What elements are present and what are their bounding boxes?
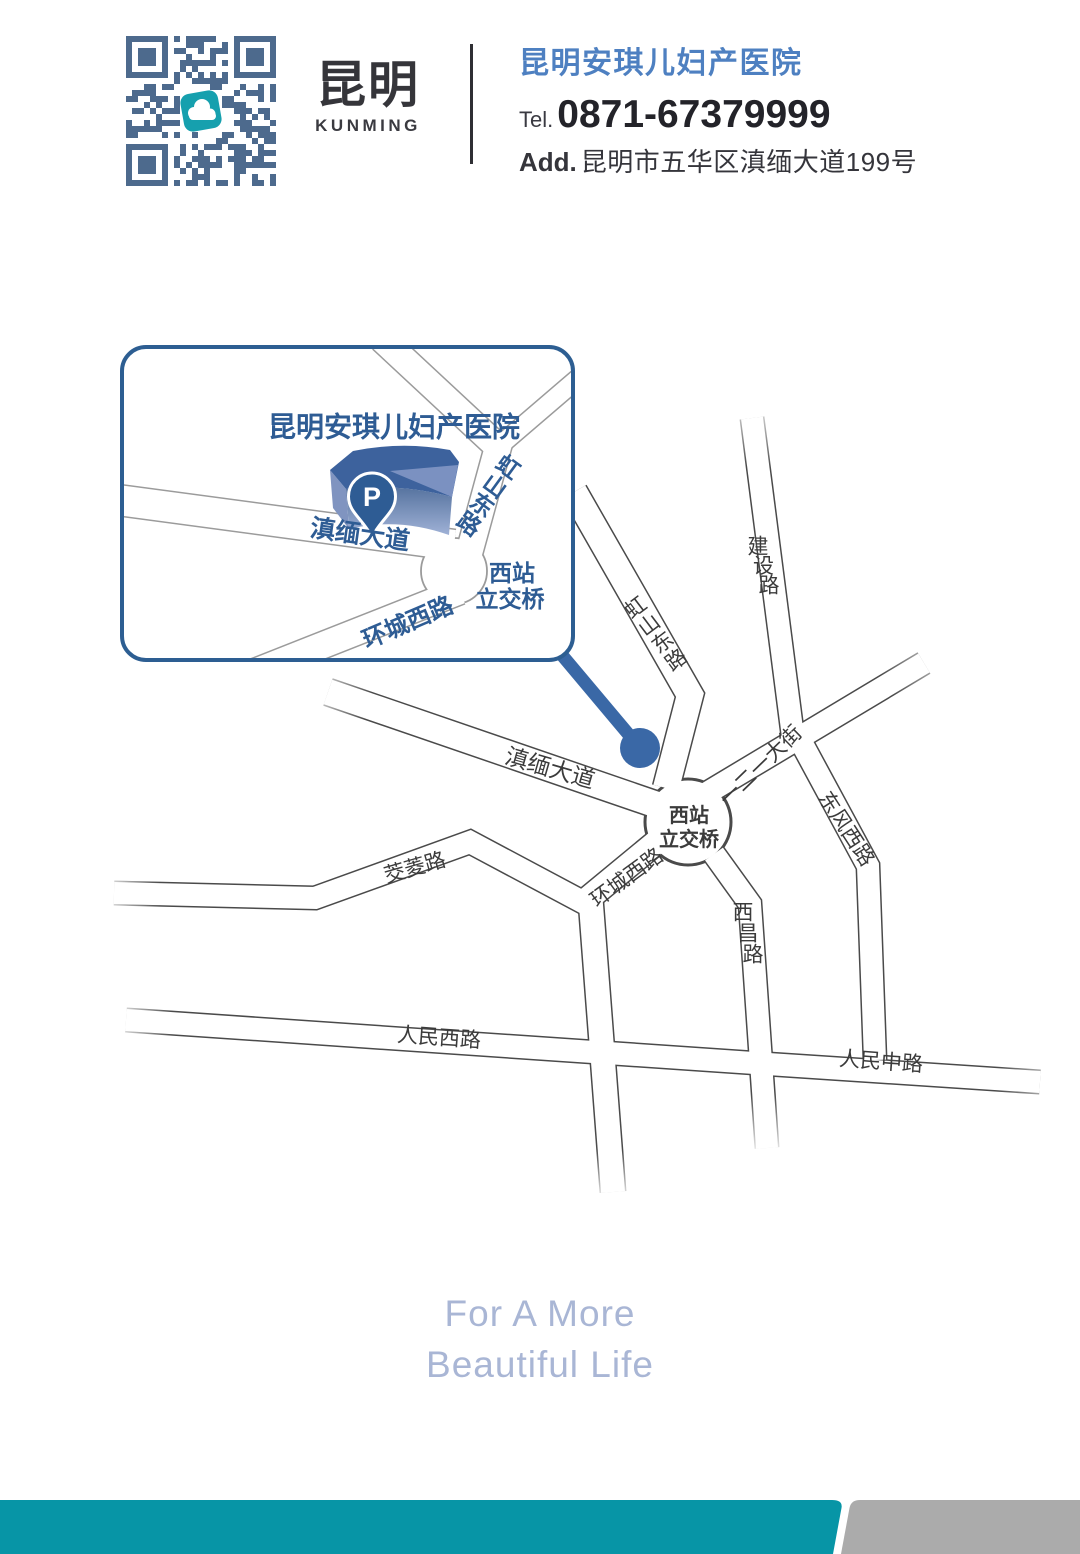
footer-bars — [0, 1494, 1080, 1554]
road-label-xichang: 西 — [733, 902, 754, 925]
road-label-dianmian: 滇缅大道 — [502, 743, 598, 793]
slogan: For A More Beautiful Life — [0, 1288, 1080, 1390]
inset-title: 昆明安琪儿妇产医院 — [268, 411, 520, 443]
tel-row: Tel. 0871-67379999 — [519, 93, 917, 137]
footer-gray-bar — [841, 1500, 1080, 1554]
address-label: Add. — [519, 147, 577, 178]
header-divider — [470, 44, 473, 164]
slogan-line-2: Beautiful Life — [0, 1339, 1080, 1390]
parking-label: P — [363, 482, 381, 512]
junction-label-1: 西站 — [669, 803, 709, 827]
address-value: 昆明市五华区滇缅大道199号 — [581, 142, 917, 179]
tel-number: 0871-67379999 — [557, 93, 830, 137]
footer-teal-bar — [0, 1500, 842, 1554]
road-label-jianshe: 路 — [759, 575, 780, 598]
address-row: Add. 昆明市五华区滇缅大道199号 — [519, 142, 917, 179]
tel-label: Tel. — [519, 107, 553, 133]
junction-label-2: 立交桥 — [659, 827, 720, 851]
slogan-line-1: For A More — [0, 1288, 1080, 1339]
hospital-marker — [556, 648, 660, 768]
poster-page: 昆明 KUNMING 昆明安琪儿妇产医院 Tel. 0871-67379999 … — [0, 0, 1080, 1554]
marker-dot — [620, 728, 660, 768]
inset-junction-label-1: 西站 — [489, 560, 535, 586]
hospital-name: 昆明安琪儿妇产医院 — [519, 38, 917, 82]
road-label-xichang: 路 — [743, 944, 764, 967]
brand-name-en: KUNMING — [293, 116, 443, 136]
road-label-xichang: 昌 — [738, 923, 759, 946]
inset-junction-label-2: 立交桥 — [476, 586, 546, 612]
brand-name-cn: 昆明 — [293, 58, 443, 113]
inset-map-canvas: 昆明安琪儿妇产医院滇缅大道虹山东路西站立交桥环城西路P — [124, 349, 571, 658]
brand-block: 昆明 KUNMING — [293, 58, 443, 136]
qr-code — [126, 36, 276, 186]
contact-info: 昆明安琪儿妇产医院 Tel. 0871-67379999 Add. 昆明市五华区… — [519, 38, 917, 179]
detail-inset-map: 昆明安琪儿妇产医院滇缅大道虹山东路西站立交桥环城西路P — [120, 345, 575, 662]
